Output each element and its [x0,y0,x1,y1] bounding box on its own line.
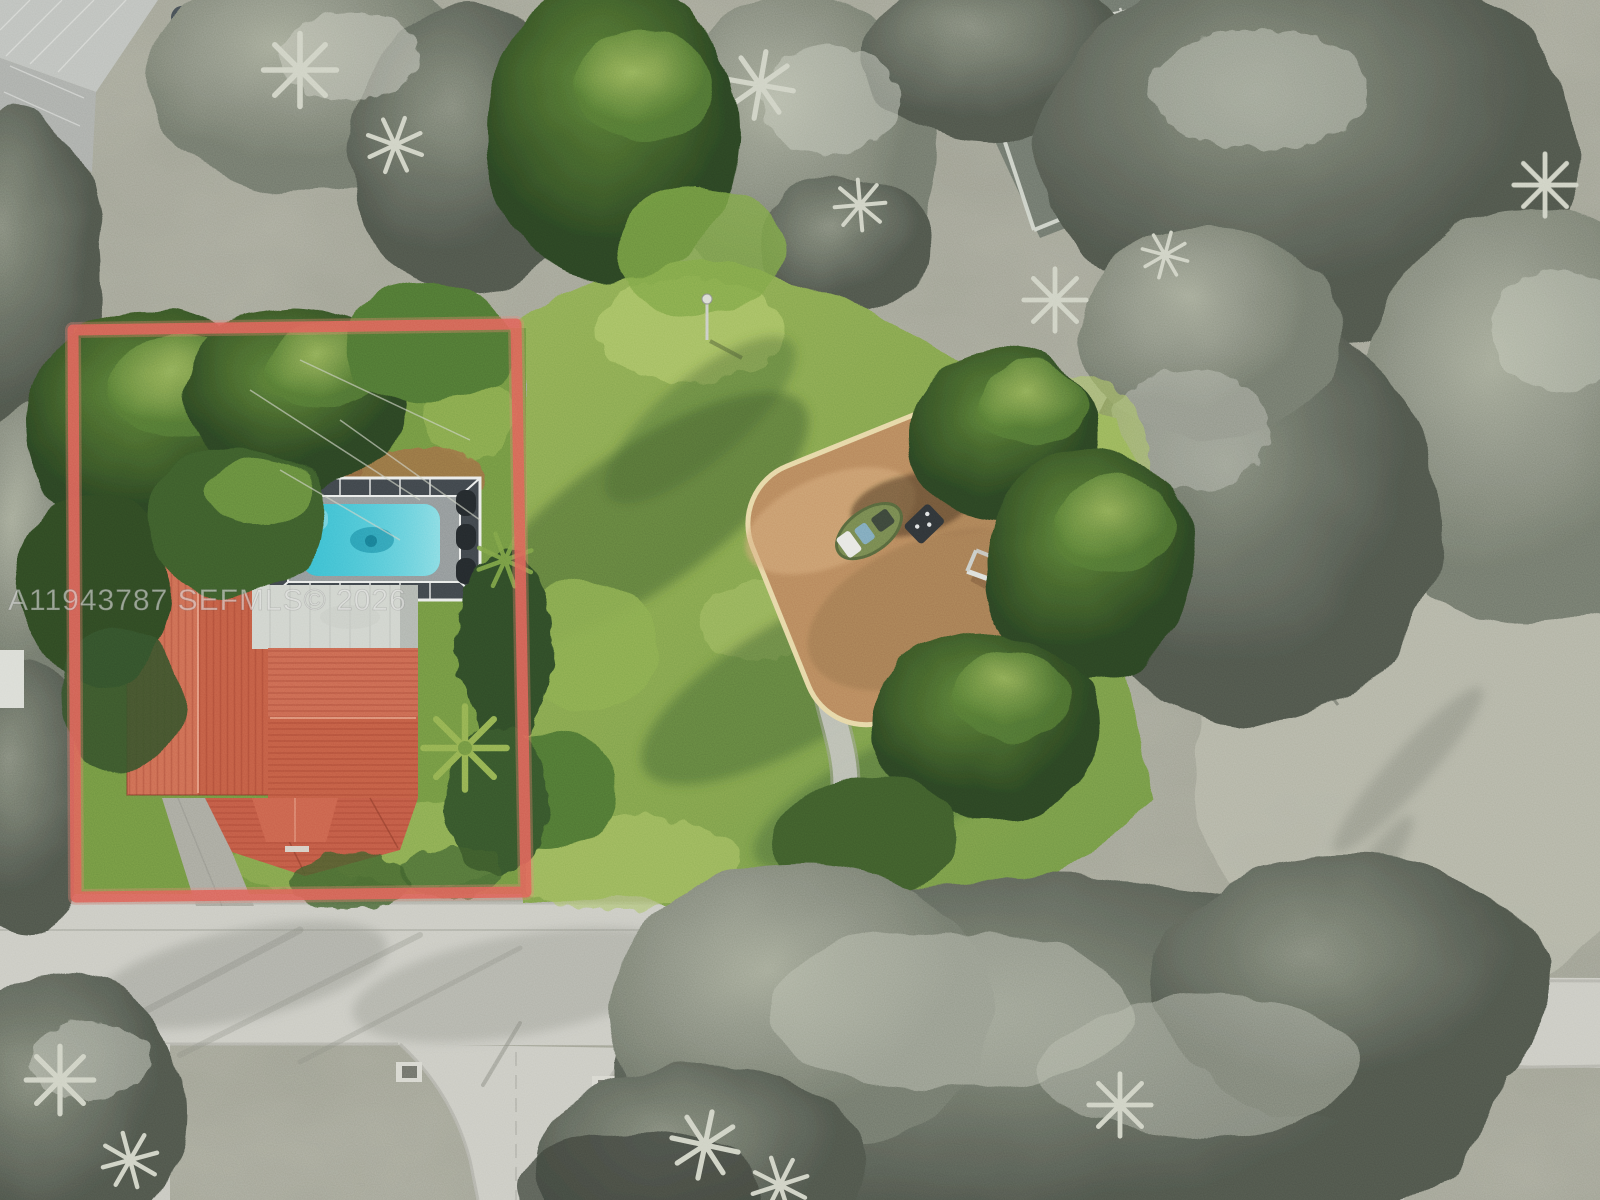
aerial-photo-canvas: A11943787 SEFMLS© 2026 [0,0,1600,1200]
film-grain [0,0,1600,1200]
aerial-photo: A11943787 SEFMLS© 2026 [0,0,1600,1200]
